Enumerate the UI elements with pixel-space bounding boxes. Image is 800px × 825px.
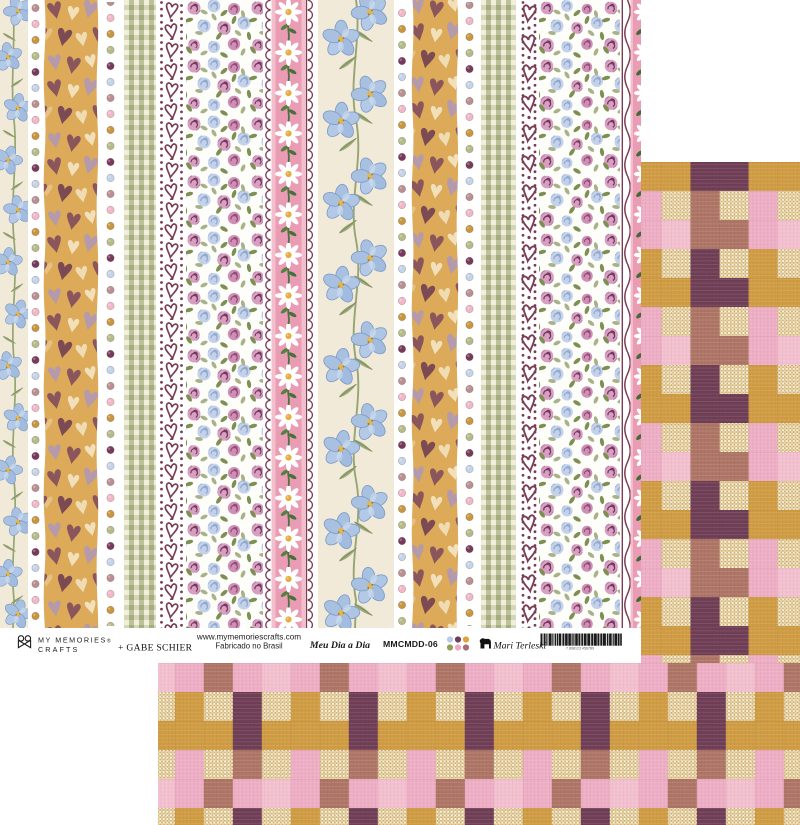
svg-text:7 898123 456789: 7 898123 456789 xyxy=(566,647,594,651)
svg-text:www.mymemoriescrafts.com: www.mymemoriescrafts.com xyxy=(196,633,301,642)
svg-text:MY MEMORIES®: MY MEMORIES® xyxy=(38,636,111,645)
svg-text:Mari Terleski: Mari Terleski xyxy=(493,641,547,652)
svg-text:+ GABE SCHIER: + GABE SCHIER xyxy=(118,643,193,654)
svg-text:Fabricado no Brasil: Fabricado no Brasil xyxy=(215,642,282,651)
svg-text:MMCMDD-06: MMCMDD-06 xyxy=(383,639,438,649)
svg-text:Meu Dia a Dia: Meu Dia a Dia xyxy=(309,640,370,651)
svg-text:CRAFTS: CRAFTS xyxy=(38,645,79,654)
